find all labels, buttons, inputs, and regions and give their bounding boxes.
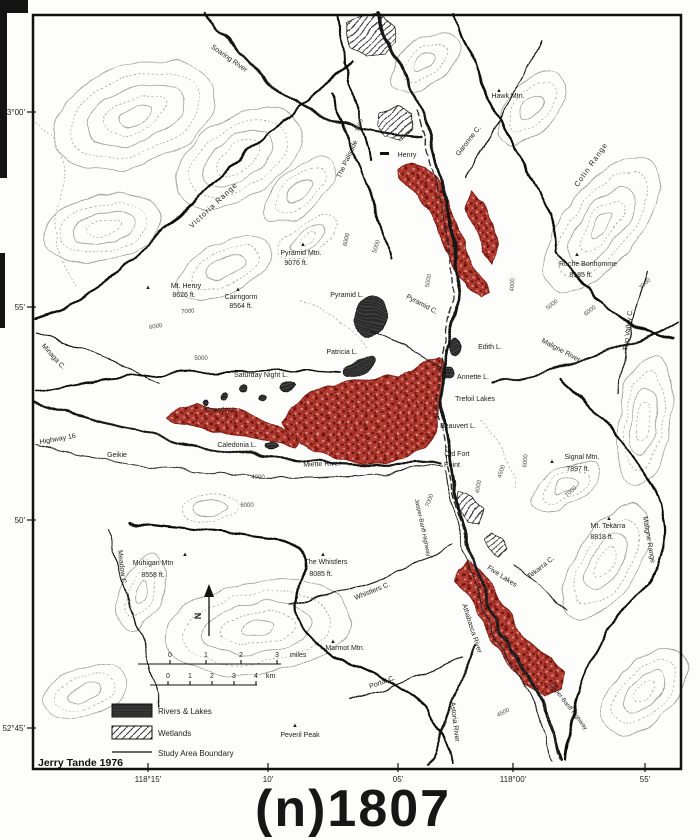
contour-elevation-label: 6000 (240, 503, 254, 509)
peak-marker-icon: ▲ (182, 552, 188, 558)
map-label: Geikie (107, 452, 127, 459)
map-label: Trefoil Lakes (455, 396, 495, 403)
contour-elevation-label: 7000 (638, 277, 652, 291)
contour-elevation-label: 5000 (372, 239, 382, 254)
latitude-label: 50' (15, 516, 26, 525)
map-label: Tekarra C. (526, 555, 556, 580)
burned-area-1807 (168, 162, 564, 698)
map-label: 8558 ft. (141, 572, 164, 579)
contour-elevation-label: 4000 (475, 479, 483, 494)
map-label: Mt. Henry (171, 283, 202, 290)
map-label: Annette L. (457, 374, 489, 381)
map-label: 8626 ft. (172, 292, 195, 299)
map-label: 8185 ft. (569, 272, 592, 279)
map-label: Dorothy L. (206, 407, 238, 414)
contour-elevation-label: 6000 (522, 453, 529, 467)
peak-marker-icon: ▲ (606, 516, 612, 522)
scale-bar-number: 1 (188, 673, 192, 680)
latitude-label: 55' (15, 303, 26, 312)
map-label: Edith L. (478, 344, 502, 351)
map-label: Cairngorm (225, 294, 258, 301)
contour-elevation-label: 7000 (181, 308, 195, 315)
map-label: Two Valley C. (622, 308, 634, 351)
peak-marker-icon: ▲ (330, 639, 336, 645)
map-label: 7897 ft. (566, 466, 589, 473)
latitude-label: 52°45' (2, 724, 25, 733)
north-label: N (193, 613, 203, 620)
north-arrow: N (193, 584, 214, 636)
scale-bar-number: 0 (166, 673, 170, 680)
map-label: Pyramid C. (405, 293, 439, 315)
map-label: Muhigan Mtn (133, 560, 174, 567)
longitude-label: 55' (640, 775, 651, 784)
contour-elevation-label: 4500 (497, 464, 507, 479)
latitude-label: 53°00' (2, 108, 25, 117)
scale-bar-number: 2 (239, 652, 243, 659)
contour-elevation-label: 5000 (194, 356, 208, 362)
scale-bar-number: 3 (275, 652, 279, 659)
contour-elevation-label: 6000 (583, 304, 598, 317)
contour-elevation-label: 4000 (251, 475, 265, 481)
map-label: Jasper-Banff Highway (547, 681, 588, 731)
peak-marker-icon: ▲ (300, 242, 306, 248)
peak-marker-icon: ▲ (496, 88, 502, 94)
peak-marker-icon: ▲ (235, 287, 241, 293)
scale-bar-unit: miles (290, 652, 307, 659)
map-label: Victoria Range (187, 180, 239, 230)
map-label: Astoria River (449, 702, 461, 743)
scale-bar-number: 0 (168, 652, 172, 659)
map-label: Patricia L. (326, 349, 357, 356)
contour-elevation-label: 6000 (343, 232, 352, 247)
contour-elevation-label: 4500 (496, 707, 511, 719)
map-label: Point (444, 462, 460, 469)
map-label: Beauvert L. (440, 423, 476, 430)
north-arrow-head (204, 584, 214, 597)
scale-bar-unit: km (266, 673, 276, 680)
map-label: 8564 ft. (229, 303, 252, 310)
figure-title: (n)1807 (255, 780, 451, 838)
map-label: Pyramid Mtn. (280, 250, 321, 257)
map-label: Mt. Tekarra (591, 523, 626, 530)
henry-site-marker (380, 152, 389, 155)
map-label: 8818 ft. (590, 534, 613, 541)
legend-label-wetlands: Wetlands (158, 729, 191, 738)
map-label: 8085 ft. (309, 571, 332, 578)
scale-bar-number: 2 (210, 673, 214, 680)
peak-marker-icon: ▲ (145, 285, 151, 291)
scale-bar-number: 3 (232, 673, 236, 680)
scale-bar-number: 4 (254, 673, 258, 680)
peak-marker-icon: ▲ (320, 552, 326, 558)
map-label: Meadow C. (116, 550, 127, 586)
map-attribution: Jerry Tande 1976 (38, 757, 123, 769)
peak-marker-icon: ▲ (549, 459, 555, 465)
map-label: Marmot Mtn. (325, 645, 364, 652)
map-label: Soaring River (209, 44, 248, 74)
scan-artifacts (0, 0, 28, 328)
contour-elevation-label: 5000 (545, 298, 560, 311)
map-label: Minaga C. (40, 343, 67, 371)
map-legend: Rivers & Lakes Wetlands Study Area Bound… (112, 704, 234, 758)
map-label: Maligne River (540, 338, 582, 365)
map-label: Hawk Mtn. (491, 93, 524, 100)
map-label: Miette River (303, 460, 341, 468)
map-label: Signal Mtn. (564, 454, 599, 461)
peak-marker-icon: ▲ (574, 252, 580, 258)
legend-swatch-rivers-lakes (112, 704, 152, 717)
legend-label-rivers-lakes: Rivers & Lakes (158, 707, 212, 716)
map-artwork: N Rivers & Lakes Wetlands Study Area Bou… (0, 0, 700, 840)
map-label: Peveril Peak (280, 732, 320, 739)
map-label: Whistlers C. (354, 581, 392, 602)
longitude-label: 118°15' (135, 775, 162, 784)
contour-elevation-label: 5000 (425, 273, 433, 288)
scale-bar: 0123miles01234km (138, 652, 307, 685)
map-label: Caledonia L. (217, 442, 256, 449)
legend-label-boundary: Study Area Boundary (158, 749, 234, 758)
scale-bar-number: 1 (204, 652, 208, 659)
map-label: Garonne C. (455, 125, 483, 158)
map-label: The Whistlers (305, 559, 348, 566)
contour-elevation-label: 4000 (509, 277, 516, 291)
map-label: Pyramid L. (330, 292, 364, 299)
map-label: Roche Bonhomme (559, 261, 617, 268)
map-label: Henry (398, 152, 417, 159)
peak-marker-icon: ▲ (292, 723, 298, 729)
map-label: Old Fort (444, 451, 469, 458)
contour-elevation-label: 7000 (425, 493, 435, 508)
longitude-label: 118°00' (500, 775, 527, 784)
contour-elevation-label: 6000 (149, 323, 164, 331)
fire-history-map-figure: N Rivers & Lakes Wetlands Study Area Bou… (0, 0, 700, 840)
map-label: 9076 ft. (284, 260, 307, 267)
map-label: Saturday Night L. (234, 372, 288, 379)
map-label: Highway 16 (39, 433, 76, 446)
legend-swatch-wetlands (112, 726, 152, 739)
